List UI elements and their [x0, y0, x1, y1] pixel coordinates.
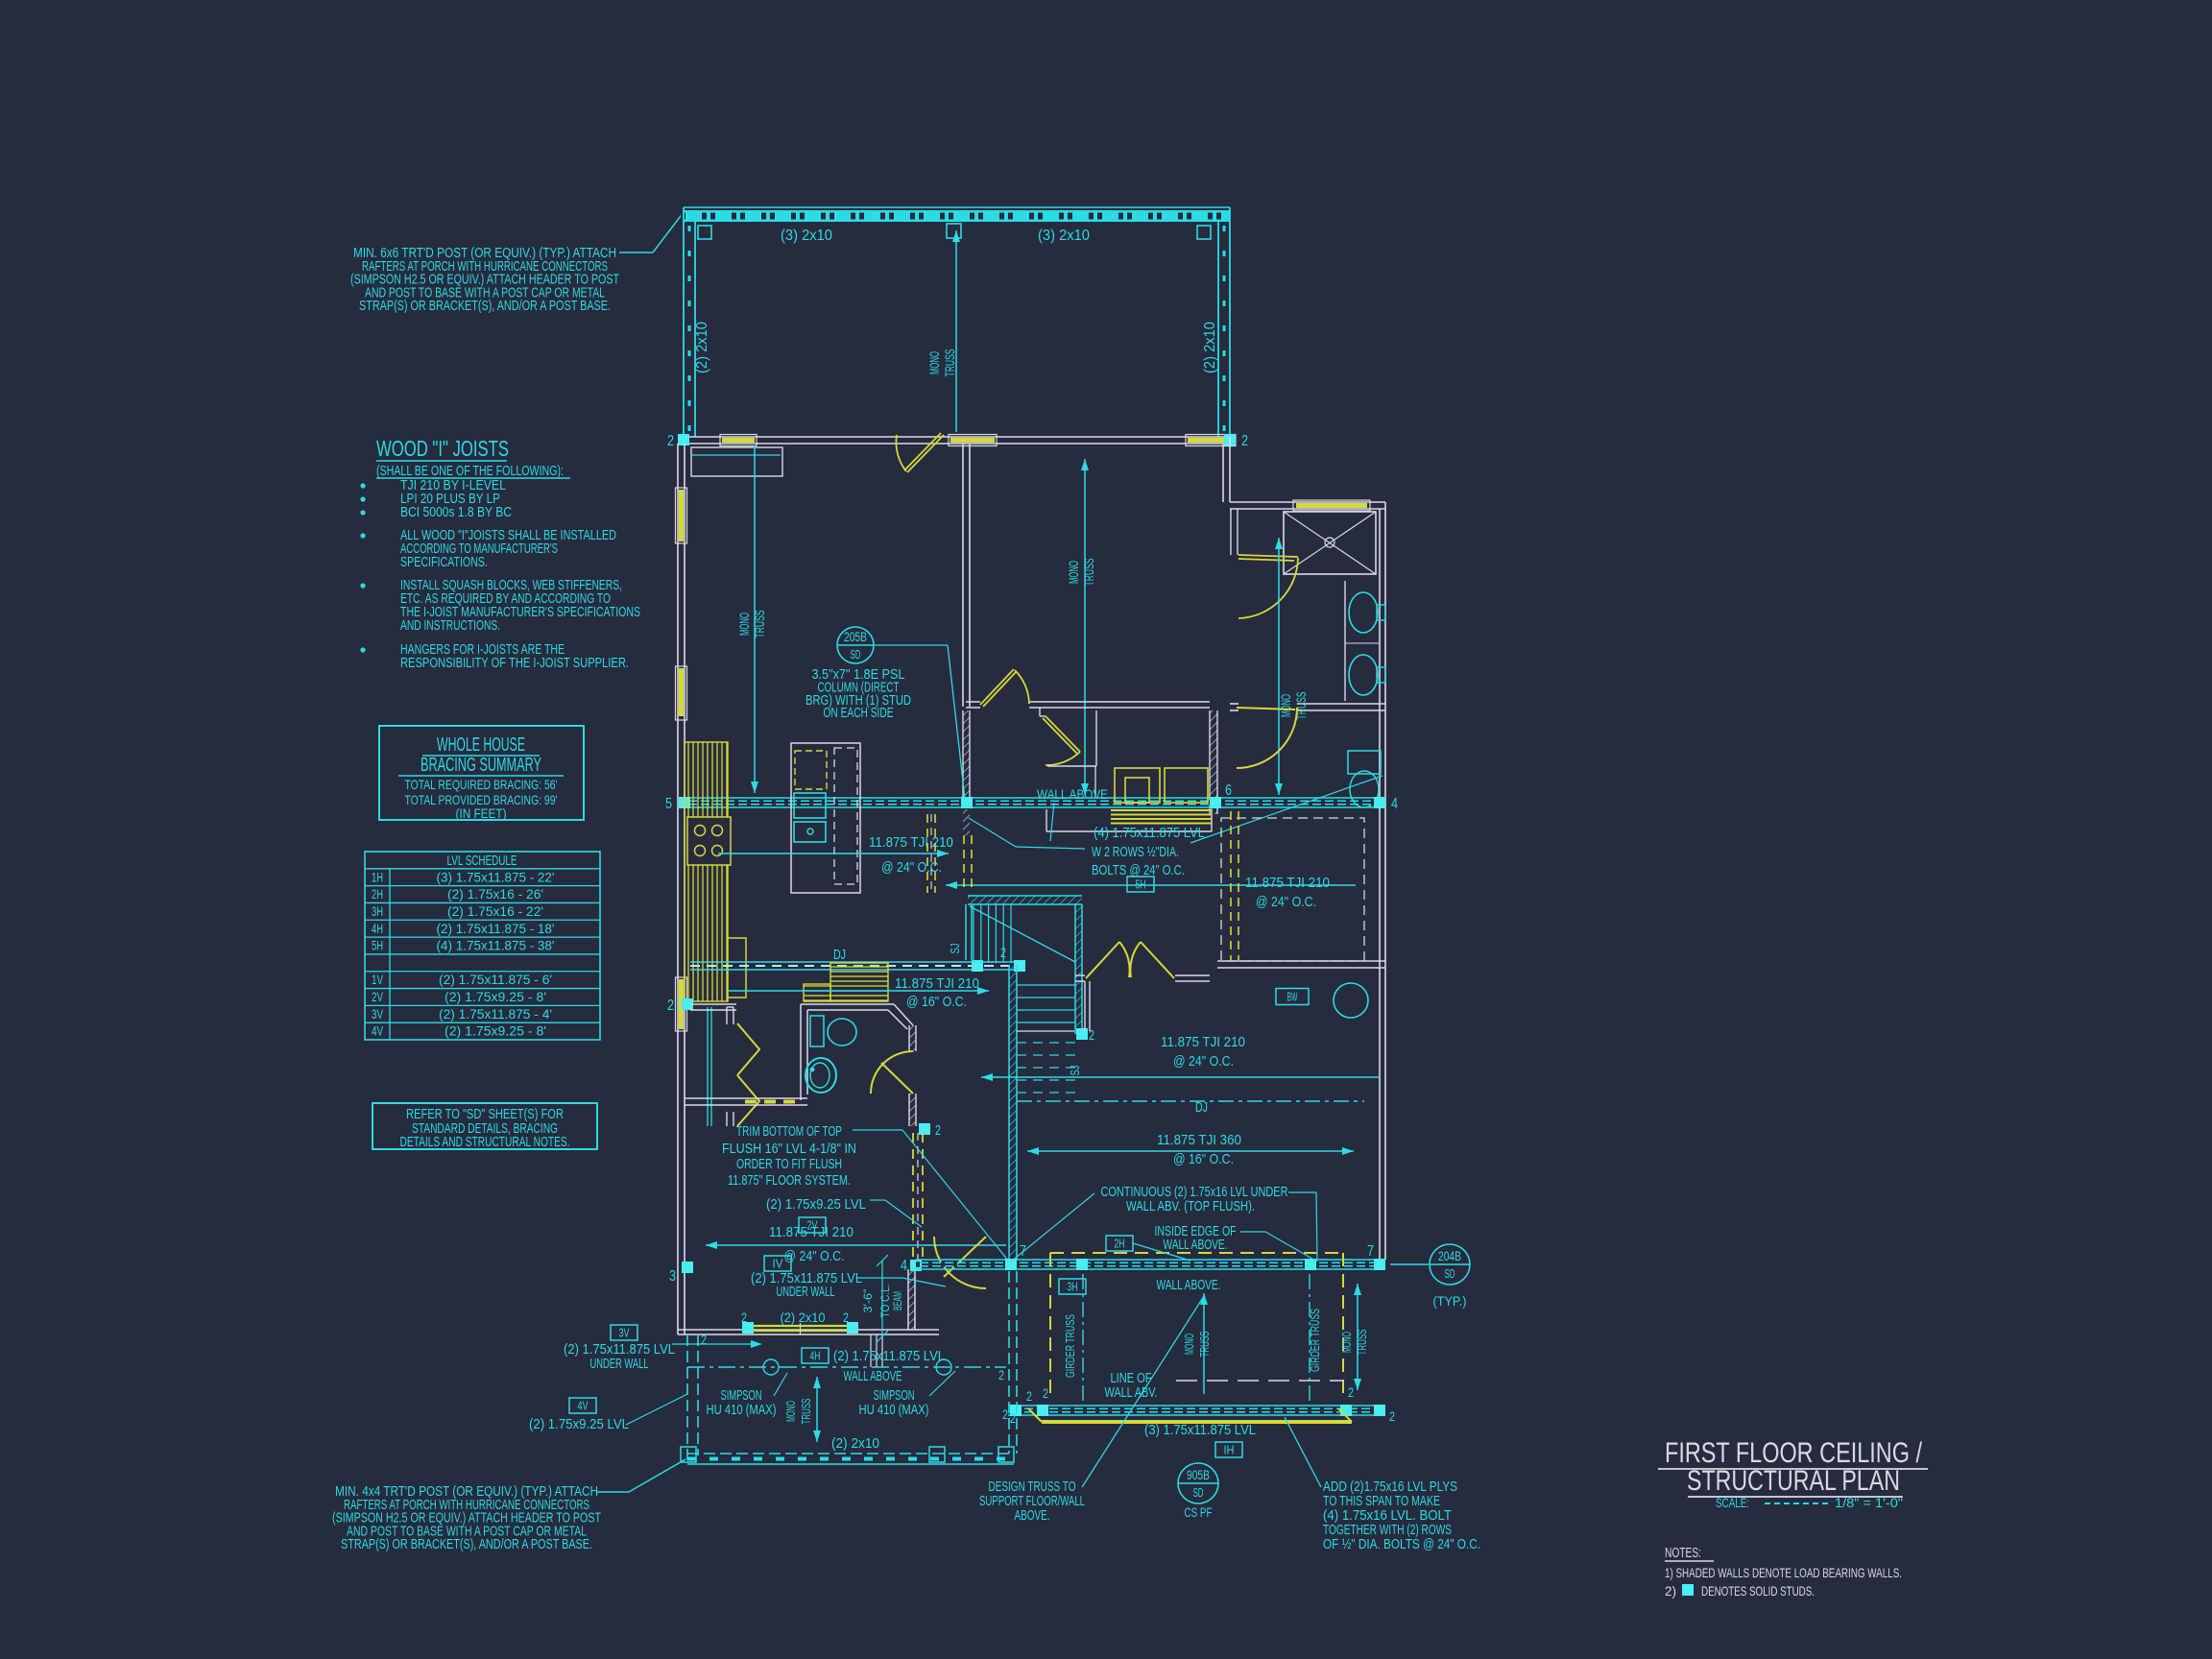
svg-text:2: 2: [843, 1310, 849, 1325]
svg-text:DJ: DJ: [833, 947, 846, 963]
svg-text:3: 3: [669, 1268, 676, 1285]
svg-text:2: 2: [998, 1367, 1004, 1382]
svg-text:ON EACH SIDE: ON EACH SIDE: [824, 706, 894, 721]
svg-text:NOTES:: NOTES:: [1665, 1545, 1701, 1561]
svg-text:TRUSS: TRUSS: [942, 349, 957, 377]
svg-text:WALL ABOVE.: WALL ABOVE.: [1164, 1238, 1228, 1253]
svg-text:RESPONSIBILITY OF THE I-JOIST: RESPONSIBILITY OF THE I-JOIST SUPPLIER.: [400, 656, 629, 671]
svg-text:4V: 4V: [372, 1023, 383, 1039]
svg-text:4H: 4H: [810, 1349, 821, 1363]
svg-text:MONO: MONO: [1339, 1332, 1354, 1353]
svg-text:4H: 4H: [372, 921, 383, 936]
svg-text:TRUSS: TRUSS: [1081, 559, 1096, 587]
svg-text:(3) 2x10: (3) 2x10: [781, 228, 832, 244]
svg-text:2: 2: [1043, 1385, 1048, 1401]
svg-text:SCALE:: SCALE:: [1716, 1495, 1749, 1510]
svg-text:DENOTES SOLID STUDS.: DENOTES SOLID STUDS.: [1701, 1583, 1815, 1599]
svg-text:(2) 1.75x9.25 LVL: (2) 1.75x9.25 LVL: [529, 1417, 629, 1432]
svg-text:2: 2: [1026, 1388, 1032, 1404]
svg-text:TRUSS: TRUSS: [752, 611, 767, 638]
svg-text:(3) 1.75x11.875 - 22': (3) 1.75x11.875 - 22': [437, 869, 555, 884]
svg-text:2V: 2V: [372, 989, 383, 1004]
svg-text:CS PF: CS PF: [1185, 1504, 1213, 1520]
svg-text:1/8" = 1'-0": 1/8" = 1'-0": [1835, 1495, 1903, 1510]
svg-text:(4) 1.75x11.875 - 38': (4) 1.75x11.875 - 38': [437, 938, 555, 953]
svg-text:3H: 3H: [1068, 1280, 1078, 1294]
svg-text:(2) 2x10: (2) 2x10: [1202, 322, 1218, 373]
svg-text:FLUSH 16" LVL 4-1/8" IN: FLUSH 16" LVL 4-1/8" IN: [722, 1142, 856, 1157]
svg-text:(2) 1.75x16 - 26': (2) 1.75x16 - 26': [447, 886, 543, 902]
svg-text:6: 6: [1225, 782, 1232, 799]
svg-text:ABOVE.: ABOVE.: [1015, 1508, 1050, 1524]
svg-text:2H: 2H: [1115, 1237, 1125, 1251]
svg-text:(4) 1.75x11.875 LVL: (4) 1.75x11.875 LVL: [1094, 826, 1205, 841]
svg-text:@ 24" O.C.: @ 24" O.C.: [881, 859, 942, 876]
svg-text:(2) 1.75x11.875 LVL: (2) 1.75x11.875 LVL: [564, 1342, 675, 1358]
svg-text:TRUSS: TRUSS: [1355, 1329, 1369, 1355]
svg-text:@ 16" O.C.: @ 16" O.C.: [906, 994, 967, 1010]
svg-text:MONO: MONO: [783, 1401, 798, 1422]
svg-text:WALL ABOVE.: WALL ABOVE.: [1157, 1278, 1221, 1293]
svg-text:STRAP(S) OR BRACKET(S), AND/OR: STRAP(S) OR BRACKET(S), AND/OR A POST BA…: [359, 299, 611, 314]
svg-text:GIRDER TRUSS: GIRDER TRUSS: [1063, 1314, 1077, 1378]
svg-text:WALL ABOVE: WALL ABOVE: [1037, 786, 1108, 802]
svg-text:WHOLE HOUSE: WHOLE HOUSE: [437, 734, 525, 756]
svg-text:WALL ABV.: WALL ABV.: [1105, 1385, 1158, 1401]
svg-text:@ 24" O.C.: @ 24" O.C.: [1173, 1053, 1234, 1070]
svg-text:SJ: SJ: [948, 944, 962, 954]
svg-text:@ 24" O.C.: @ 24" O.C.: [1256, 894, 1316, 910]
svg-text:BCI 5000s 1.8 BY BC: BCI 5000s 1.8 BY BC: [400, 505, 512, 520]
svg-text:TRUSS: TRUSS: [799, 1398, 813, 1424]
svg-text:(SHALL BE ONE OF THE FOLLOWING: (SHALL BE ONE OF THE FOLLOWING):: [376, 464, 564, 479]
svg-text:TOGETHER WITH (2) ROWS: TOGETHER WITH (2) ROWS: [1323, 1523, 1452, 1538]
svg-text:(IN FEET): (IN FEET): [456, 805, 507, 821]
svg-text:ADD (2)1.75x16 LVL PLYS: ADD (2)1.75x16 LVL PLYS: [1323, 1479, 1457, 1495]
svg-text:(2) 1.75x9.25 LVL: (2) 1.75x9.25 LVL: [766, 1197, 866, 1213]
svg-text:(2) 1.75x11.875 - 4': (2) 1.75x11.875 - 4': [439, 1006, 552, 1022]
svg-text:3V: 3V: [619, 1326, 630, 1340]
svg-text:(2) 1.75x16 - 22': (2) 1.75x16 - 22': [447, 903, 543, 919]
svg-text:HU 410 (MAX): HU 410 (MAX): [707, 1403, 777, 1418]
svg-text:@ 16" O.C.: @ 16" O.C.: [1173, 1151, 1234, 1167]
svg-text:UNDER WALL: UNDER WALL: [590, 1357, 649, 1372]
svg-text:BRACING SUMMARY: BRACING SUMMARY: [421, 755, 541, 776]
svg-text:STRUCTURAL PLAN: STRUCTURAL PLAN: [1687, 1465, 1900, 1497]
svg-text:(3) 2x10: (3) 2x10: [1038, 228, 1090, 244]
svg-text:SIMPSON: SIMPSON: [721, 1388, 762, 1404]
svg-text:4: 4: [1391, 796, 1398, 812]
svg-text:REFER TO "SD" SHEET(S) FOR: REFER TO "SD" SHEET(S) FOR: [406, 1107, 564, 1122]
svg-text:DESIGN TRUSS TO: DESIGN TRUSS TO: [989, 1479, 1076, 1495]
svg-text:MONO: MONO: [1182, 1334, 1196, 1355]
svg-text:MONO: MONO: [1278, 694, 1293, 717]
svg-text:11.875" FLOOR SYSTEM.: 11.875" FLOOR SYSTEM.: [728, 1173, 851, 1189]
svg-text:11.875 TJI 360: 11.875 TJI 360: [1157, 1132, 1241, 1148]
svg-text:(2) 2x10: (2) 2x10: [831, 1435, 879, 1452]
svg-text:7: 7: [1367, 1243, 1374, 1260]
svg-text:2H: 2H: [372, 886, 383, 902]
svg-text:5: 5: [665, 796, 672, 812]
svg-text:1H: 1H: [372, 869, 383, 884]
svg-text:11.875 TJI 210: 11.875 TJI 210: [1161, 1034, 1245, 1050]
svg-text:(4) 1.75x16 LVL. BOLT: (4) 1.75x16 LVL. BOLT: [1323, 1508, 1452, 1524]
svg-text:2: 2: [1010, 1410, 1016, 1426]
svg-text:TO C.L.: TO C.L.: [878, 1285, 892, 1318]
svg-text:DETAILS AND STRUCTURAL NOTES.: DETAILS AND STRUCTURAL NOTES.: [400, 1135, 570, 1150]
svg-text:SJ: SJ: [1068, 1066, 1082, 1076]
svg-text:STRAP(S) OR BRACKET(S), AND/OR: STRAP(S) OR BRACKET(S), AND/OR A POST BA…: [341, 1537, 592, 1552]
svg-text:2: 2: [935, 1122, 941, 1139]
svg-text:(TYP.): (TYP.): [1433, 1293, 1467, 1309]
svg-text:5H: 5H: [1136, 878, 1146, 892]
svg-text:(2) 1.75x9.25 - 8': (2) 1.75x9.25 - 8': [445, 989, 546, 1004]
svg-text:GIRDER TRUSS: GIRDER TRUSS: [1308, 1309, 1322, 1372]
svg-text:@ 24" O.C.: @ 24" O.C.: [784, 1248, 845, 1264]
svg-text:TRUSS: TRUSS: [1293, 692, 1309, 720]
svg-text:2: 2: [701, 1332, 707, 1347]
svg-text:W 2 ROWS ½"DIA.: W 2 ROWS ½"DIA.: [1092, 845, 1179, 860]
svg-text:4: 4: [901, 1258, 907, 1274]
svg-text:BEAM: BEAM: [891, 1291, 904, 1310]
svg-text:4V: 4V: [578, 1399, 589, 1413]
svg-text:MONO: MONO: [736, 613, 752, 636]
svg-text:CONTINUOUS (2) 1.75x16 LVL UND: CONTINUOUS (2) 1.75x16 LVL UNDER: [1101, 1185, 1288, 1200]
svg-text:AND INSTRUCTIONS.: AND INSTRUCTIONS.: [400, 618, 500, 634]
svg-text:(3) 1.75x11.875 LVL: (3) 1.75x11.875 LVL: [1144, 1423, 1256, 1438]
svg-text:2): 2): [1665, 1583, 1676, 1599]
svg-text:SD: SD: [1445, 1266, 1455, 1281]
svg-text:1V: 1V: [372, 972, 383, 987]
svg-text:11.875 TJI 210: 11.875 TJI 210: [1245, 875, 1330, 891]
svg-text:2: 2: [1002, 1407, 1008, 1422]
svg-text:BW: BW: [1287, 990, 1298, 1004]
svg-text:2: 2: [667, 998, 674, 1014]
svg-text:MONO: MONO: [926, 351, 942, 374]
svg-text:2: 2: [1348, 1384, 1354, 1400]
svg-text:2: 2: [1389, 1408, 1395, 1424]
svg-text:HU 410 (MAX): HU 410 (MAX): [859, 1403, 929, 1418]
svg-text:TRIM BOTTOM OF TOP: TRIM BOTTOM OF TOP: [736, 1124, 842, 1140]
svg-text:IV: IV: [773, 1257, 783, 1271]
svg-text:5H: 5H: [372, 938, 383, 953]
svg-text:ORDER TO FIT FLUSH: ORDER TO FIT FLUSH: [736, 1157, 842, 1172]
svg-text:LINE OF: LINE OF: [1111, 1371, 1152, 1386]
svg-text:11.875 TJI 210: 11.875 TJI 210: [769, 1224, 854, 1240]
svg-text:(2) 1.75x9.25 - 8': (2) 1.75x9.25 - 8': [445, 1023, 546, 1039]
svg-text:DJ: DJ: [1195, 1099, 1208, 1116]
svg-text:OF ½" DIA. BOLTS @ 24" O.C.: OF ½" DIA. BOLTS @ 24" O.C.: [1323, 1537, 1480, 1552]
svg-text:(2) 2x10: (2) 2x10: [781, 1310, 826, 1325]
svg-text:1) SHADED WALLS DENOTE LOAD BE: 1) SHADED WALLS DENOTE LOAD BEARING WALL…: [1665, 1565, 1902, 1580]
svg-text:TOTAL REQUIRED BRACING: 56': TOTAL REQUIRED BRACING: 56': [405, 777, 558, 792]
svg-text:205B: 205B: [844, 629, 867, 644]
svg-text:(2) 1.75x11.875 - 18': (2) 1.75x11.875 - 18': [437, 921, 555, 936]
svg-text:TRUSS: TRUSS: [1197, 1331, 1212, 1357]
svg-text:2: 2: [1241, 433, 1248, 449]
svg-text:2: 2: [667, 433, 674, 449]
svg-text:SIMPSON: SIMPSON: [874, 1388, 915, 1404]
svg-text:11.875 TJI 210: 11.875 TJI 210: [869, 834, 953, 851]
svg-text:(2) 2x10: (2) 2x10: [694, 322, 710, 373]
svg-text:(2) 1.75x11.875 LVL: (2) 1.75x11.875 LVL: [833, 1349, 945, 1364]
svg-text:2: 2: [741, 1310, 747, 1325]
svg-text:SPECIFICATIONS.: SPECIFICATIONS.: [400, 555, 488, 570]
svg-text:WALL ABOVE: WALL ABOVE: [844, 1369, 902, 1384]
svg-text:3H: 3H: [372, 903, 383, 919]
svg-text:IH: IH: [1224, 1443, 1235, 1457]
svg-text:WOOD "I" JOISTS: WOOD "I" JOISTS: [376, 436, 509, 461]
svg-text:UNDER WALL: UNDER WALL: [777, 1285, 835, 1300]
svg-text:SUPPORT FLOOR/WALL: SUPPORT FLOOR/WALL: [979, 1494, 1085, 1509]
svg-text:905B: 905B: [1187, 1467, 1210, 1482]
svg-text:3V: 3V: [372, 1006, 383, 1022]
svg-text:SD: SD: [1193, 1485, 1204, 1500]
svg-text:LVL SCHEDULE: LVL SCHEDULE: [447, 854, 517, 869]
svg-text:TO THIS SPAN TO MAKE: TO THIS SPAN TO MAKE: [1323, 1494, 1440, 1509]
svg-text:SD: SD: [851, 647, 861, 661]
svg-text:3'-6": 3'-6": [861, 1289, 875, 1313]
svg-text:204B: 204B: [1438, 1248, 1461, 1263]
svg-text:11.875 TJI 210: 11.875 TJI 210: [895, 975, 979, 992]
svg-text:MONO: MONO: [1066, 561, 1081, 584]
svg-text:(2) 1.75x11.875 - 6': (2) 1.75x11.875 - 6': [439, 972, 552, 987]
svg-text:WALL ABV. (TOP FLUSH).: WALL ABV. (TOP FLUSH).: [1126, 1199, 1255, 1214]
